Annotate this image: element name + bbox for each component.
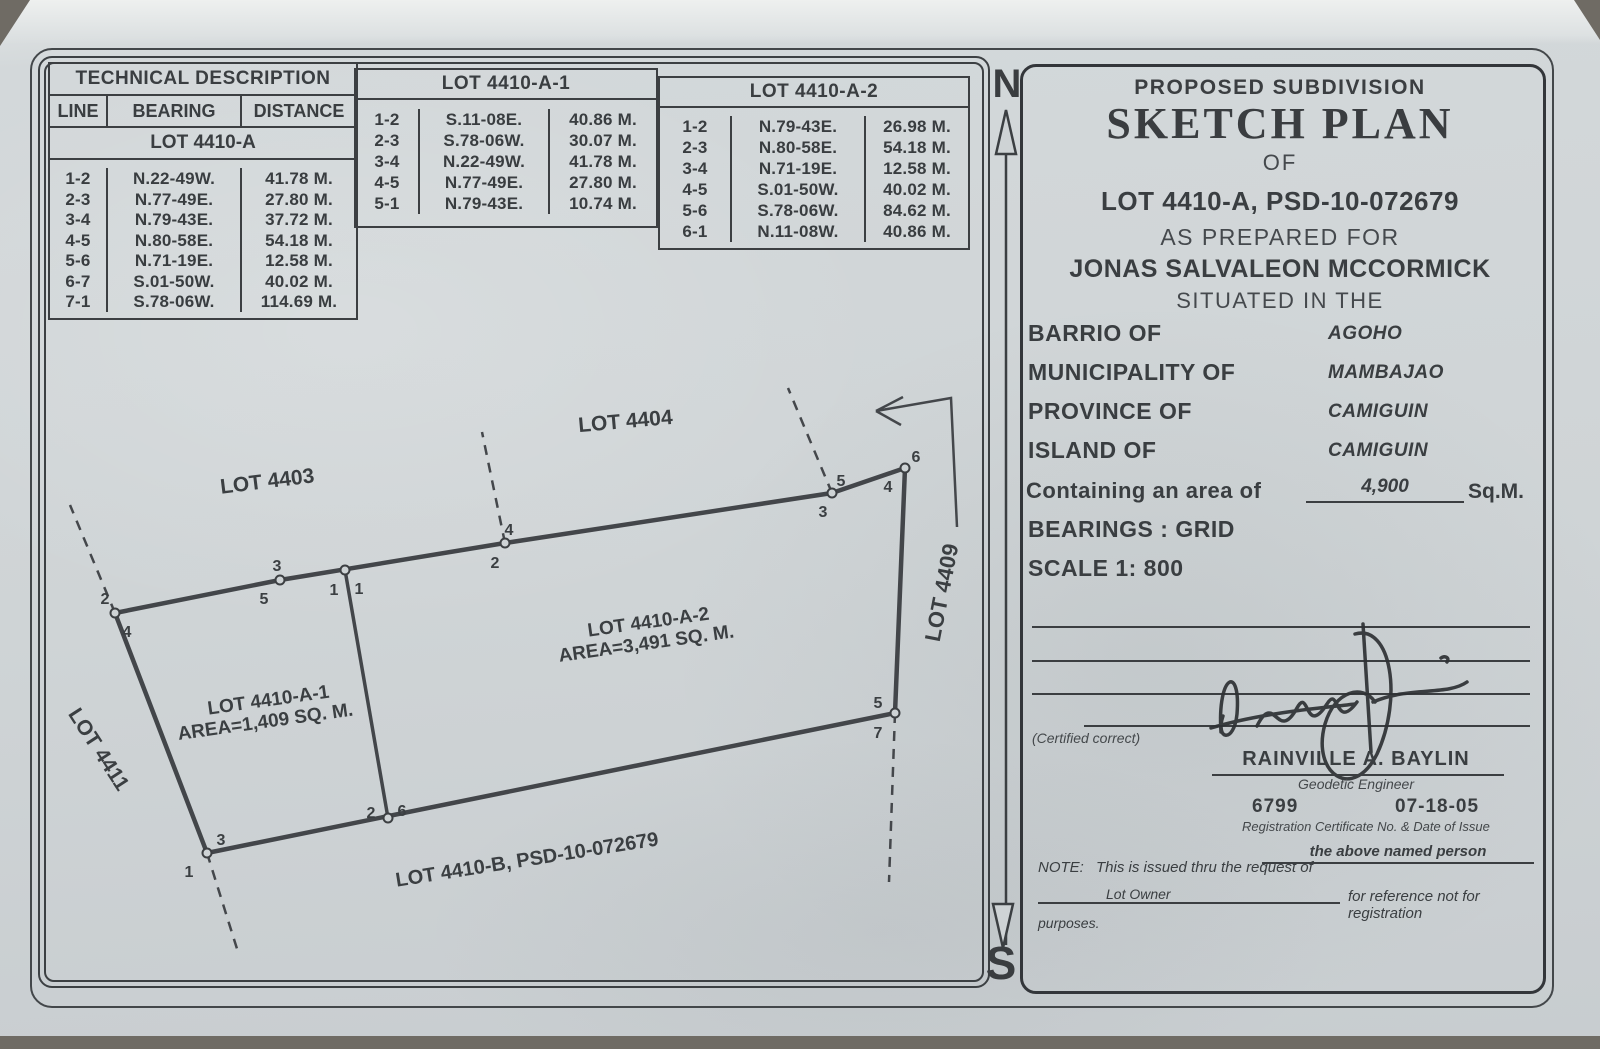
table-row: 6-7S.01-50W.40.02 M. bbox=[50, 271, 356, 292]
cell-line: 5-6 bbox=[50, 250, 108, 271]
table-row: 1-2S.11-08E.40.86 M. bbox=[356, 109, 656, 130]
cell-distance: 114.69 M. bbox=[242, 291, 356, 312]
table-header-row: LINE BEARING DISTANCE bbox=[50, 96, 356, 128]
cell-bearing: N.22-49W. bbox=[108, 168, 242, 189]
cell-distance: 10.74 M. bbox=[550, 193, 656, 214]
cell-line: 1-2 bbox=[660, 116, 732, 137]
note-purposes-text: purposes. bbox=[1038, 915, 1099, 931]
note-reference-text: for reference not for registration bbox=[1348, 888, 1540, 922]
table-row: 1-2N.22-49W.41.78 M. bbox=[50, 168, 356, 189]
field-value-province: CAMIGUIN bbox=[1328, 401, 1428, 423]
cell-distance: 12.58 M. bbox=[866, 158, 968, 179]
cell-line: 1-2 bbox=[356, 109, 420, 130]
cell-line: 1-2 bbox=[50, 168, 108, 189]
cell-distance: 40.02 M. bbox=[866, 179, 968, 200]
cell-line: 5-6 bbox=[660, 200, 732, 221]
cell-line: 3-4 bbox=[356, 151, 420, 172]
table-row: 1-2N.79-43E.26.98 M. bbox=[660, 116, 968, 137]
note-blank-line bbox=[1038, 902, 1340, 904]
title-sketch-plan: SKETCH PLAN bbox=[1020, 98, 1540, 149]
cell-line: 2-3 bbox=[660, 137, 732, 158]
field-label-province: PROVINCE OF bbox=[1028, 398, 1192, 425]
field-label-island: ISLAND OF bbox=[1028, 437, 1156, 464]
scan-background-corner bbox=[0, 0, 30, 46]
title-lot-number: LOT 4410-A, PSD-10-072679 bbox=[1020, 186, 1540, 217]
cell-distance: 27.80 M. bbox=[550, 172, 656, 193]
cell-line: 5-1 bbox=[356, 193, 420, 214]
cell-bearing: N.71-19E. bbox=[108, 250, 242, 271]
technical-description-table: TECHNICAL DESCRIPTION LINE BEARING DISTA… bbox=[48, 62, 358, 320]
scan-background-corner bbox=[1574, 0, 1600, 40]
cell-line: 6-1 bbox=[660, 221, 732, 242]
table-body: 1-2N.79-43E.26.98 M. 2-3N.80-58E.54.18 M… bbox=[660, 108, 968, 248]
cell-line: 3-4 bbox=[660, 158, 732, 179]
table-row: 3-4N.22-49W.41.78 M. bbox=[356, 151, 656, 172]
cell-distance: 40.86 M. bbox=[866, 221, 968, 242]
cell-distance: 41.78 M. bbox=[550, 151, 656, 172]
field-value-barrio: AGOHO bbox=[1328, 323, 1402, 345]
cell-line: 4-5 bbox=[660, 179, 732, 200]
bearings-label: BEARINGS : GRID bbox=[1028, 516, 1235, 543]
cell-bearing: S.78-06W. bbox=[732, 200, 866, 221]
cell-line: 7-1 bbox=[50, 291, 108, 312]
cell-bearing: N.71-19E. bbox=[732, 158, 866, 179]
title-proposed-subdivision: PROPOSED SUBDIVISION bbox=[1020, 76, 1540, 100]
table-row: 2-3N.77-49E.27.80 M. bbox=[50, 189, 356, 210]
title-owner-name: JONAS SALVALEON MCCORMICK bbox=[1020, 255, 1540, 284]
column-header-line: LINE bbox=[50, 96, 108, 126]
field-value-municipality: MAMBAJAO bbox=[1328, 362, 1444, 384]
paper-edge-highlight bbox=[0, 0, 1600, 44]
field-value-island: CAMIGUIN bbox=[1328, 440, 1428, 462]
registration-date: 07-18-05 bbox=[1395, 796, 1479, 818]
certified-correct-label: (Certified correct) bbox=[1032, 730, 1140, 746]
cell-distance: 54.18 M. bbox=[866, 137, 968, 158]
table-row: 5-6N.71-19E.12.58 M. bbox=[50, 250, 356, 271]
cell-distance: 40.86 M. bbox=[550, 109, 656, 130]
cell-line: 6-7 bbox=[50, 271, 108, 292]
cell-line: 2-3 bbox=[356, 130, 420, 151]
cell-bearing: N.79-43E. bbox=[108, 209, 242, 230]
cell-line: 2-3 bbox=[50, 189, 108, 210]
note-lot-owner: Lot Owner bbox=[1106, 886, 1171, 902]
lot-4410-a1-table: LOT 4410-A-1 1-2S.11-08E.40.86 M. 2-3S.7… bbox=[354, 68, 658, 228]
table-row: 3-4N.79-43E.37.72 M. bbox=[50, 209, 356, 230]
column-header-distance: DISTANCE bbox=[242, 96, 356, 126]
cell-bearing: N.77-49E. bbox=[420, 172, 550, 193]
cell-distance: 26.98 M. bbox=[866, 116, 968, 137]
area-value: 4,900 bbox=[1306, 476, 1464, 503]
note-label: NOTE: bbox=[1038, 859, 1084, 876]
cell-bearing: S.78-06W. bbox=[108, 291, 242, 312]
area-unit: Sq.M. bbox=[1468, 480, 1524, 504]
table-row: 2-3S.78-06W.30.07 M. bbox=[356, 130, 656, 151]
field-label-barrio: BARRIO OF bbox=[1028, 320, 1162, 347]
table-body: 1-2N.22-49W.41.78 M. 2-3N.77-49E.27.80 M… bbox=[50, 160, 356, 318]
table-subtitle: LOT 4410-A bbox=[50, 128, 356, 160]
cell-bearing: N.11-08W. bbox=[732, 221, 866, 242]
cell-bearing: N.22-49W. bbox=[420, 151, 550, 172]
title-situated: SITUATED IN THE bbox=[1020, 288, 1540, 314]
cell-bearing: S.78-06W. bbox=[420, 130, 550, 151]
area-label: Containing an area of bbox=[1026, 478, 1261, 504]
cell-bearing: N.79-43E. bbox=[420, 193, 550, 214]
field-label-municipality: MUNICIPALITY OF bbox=[1028, 359, 1235, 386]
lot-4410-a2-table: LOT 4410-A-2 1-2N.79-43E.26.98 M. 2-3N.8… bbox=[658, 76, 970, 250]
cell-bearing: N.80-58E. bbox=[732, 137, 866, 158]
cell-bearing: N.77-49E. bbox=[108, 189, 242, 210]
table-row: 6-1N.11-08W.40.86 M. bbox=[660, 221, 968, 242]
registration-caption: Registration Certificate No. & Date of I… bbox=[1242, 819, 1490, 834]
registration-number: 6799 bbox=[1252, 796, 1298, 818]
cell-distance: 41.78 M. bbox=[242, 168, 356, 189]
cell-bearing: S.01-50W. bbox=[732, 179, 866, 200]
note-fill-value: the above named person bbox=[1262, 843, 1534, 864]
table-row: 4-5N.80-58E.54.18 M. bbox=[50, 230, 356, 251]
cell-bearing: N.80-58E. bbox=[108, 230, 242, 251]
cell-line: 4-5 bbox=[50, 230, 108, 251]
table-body: 1-2S.11-08E.40.86 M. 2-3S.78-06W.30.07 M… bbox=[356, 100, 656, 226]
cell-bearing: N.79-43E. bbox=[732, 116, 866, 137]
title-block-content: PROPOSED SUBDIVISION SKETCH PLAN OF LOT … bbox=[1020, 64, 1540, 988]
cell-distance: 84.62 M. bbox=[866, 200, 968, 221]
table-row: 7-1S.78-06W.114.69 M. bbox=[50, 291, 356, 312]
south-label: S bbox=[978, 936, 1024, 990]
table-row: 5-1N.79-43E.10.74 M. bbox=[356, 193, 656, 214]
cell-distance: 37.72 M. bbox=[242, 209, 356, 230]
table-row: 5-6S.78-06W.84.62 M. bbox=[660, 200, 968, 221]
cell-bearing: S.11-08E. bbox=[420, 109, 550, 130]
scale-label: SCALE 1: 800 bbox=[1028, 555, 1184, 582]
cell-distance: 40.02 M. bbox=[242, 271, 356, 292]
table-row: 3-4N.71-19E.12.58 M. bbox=[660, 158, 968, 179]
table-title: LOT 4410-A-2 bbox=[660, 78, 968, 108]
table-row: 2-3N.80-58E.54.18 M. bbox=[660, 137, 968, 158]
engineer-title: Geodetic Engineer bbox=[1210, 776, 1502, 792]
cell-distance: 30.07 M. bbox=[550, 130, 656, 151]
title-prepared-for: AS PREPARED FOR bbox=[1020, 224, 1540, 251]
cell-distance: 27.80 M. bbox=[242, 189, 356, 210]
table-row: 4-5N.77-49E.27.80 M. bbox=[356, 172, 656, 193]
table-row: 4-5S.01-50W.40.02 M. bbox=[660, 179, 968, 200]
engineer-name: RAINVILLE A. BAYLIN bbox=[1210, 748, 1502, 771]
cell-line: 3-4 bbox=[50, 209, 108, 230]
cell-distance: 54.18 M. bbox=[242, 230, 356, 251]
table-title: LOT 4410-A-1 bbox=[356, 70, 656, 100]
title-of: OF bbox=[1020, 150, 1540, 176]
cell-bearing: S.01-50W. bbox=[108, 271, 242, 292]
table-title: TECHNICAL DESCRIPTION bbox=[50, 64, 356, 96]
cell-line: 4-5 bbox=[356, 172, 420, 193]
column-header-bearing: BEARING bbox=[108, 96, 242, 126]
cell-distance: 12.58 M. bbox=[242, 250, 356, 271]
